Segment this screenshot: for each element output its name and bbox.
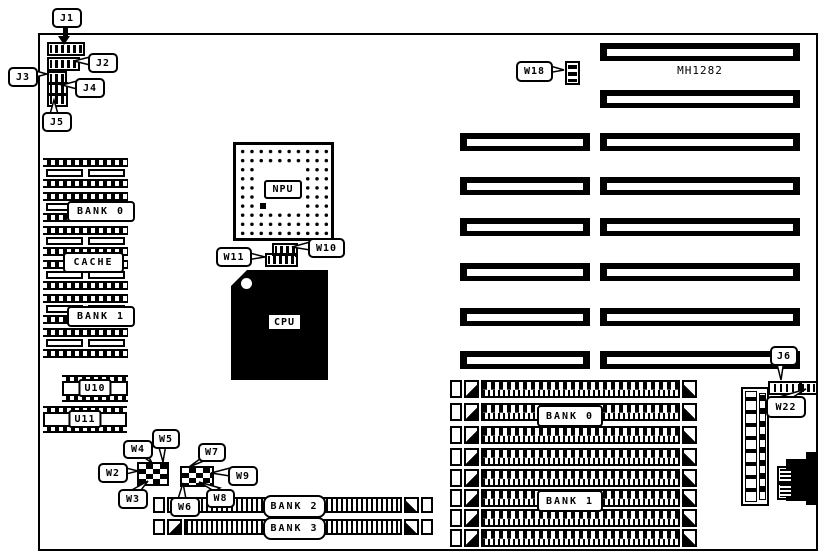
bank0-simm-label: BANK 0	[537, 405, 603, 427]
j2-callout: J2	[88, 53, 118, 73]
j6-callout: J6	[770, 346, 798, 366]
j5-header	[47, 93, 68, 107]
bank3-simm-label: BANK 3	[263, 517, 326, 540]
j5-callout: J5	[42, 112, 72, 132]
power-connector	[741, 387, 769, 506]
bank1-dip-label: BANK 1	[67, 306, 135, 327]
w10-callout: W10	[308, 238, 345, 258]
u10-chip: U10	[62, 375, 128, 402]
w7-callout: W7	[198, 443, 226, 462]
cpu-pin1-dot	[241, 278, 252, 289]
isa-slot-ext	[460, 351, 590, 369]
w6-w9-jumper-block	[180, 466, 214, 487]
w3-callout: W3	[118, 489, 148, 509]
simm-socket	[450, 448, 697, 466]
isa-slot	[600, 133, 800, 151]
isa-slot-ext	[460, 218, 590, 236]
j1-header	[47, 42, 85, 56]
isa-slot-ext	[460, 133, 590, 151]
w4-callout: W4	[123, 440, 153, 459]
w6-callout: W6	[170, 497, 200, 517]
isa-slot-ext	[460, 308, 590, 326]
isa-slot	[600, 218, 800, 236]
w22-callout: W22	[766, 396, 806, 418]
isa-slot	[600, 263, 800, 281]
isa-slot	[600, 43, 800, 61]
bank0-dip-label: BANK 0	[67, 201, 135, 222]
w11-callout: W11	[216, 247, 252, 267]
j2-header	[47, 57, 80, 71]
npu-socket-center: NPU	[257, 165, 305, 212]
isa-slot-ext	[460, 177, 590, 195]
w11-jumper	[265, 253, 298, 267]
keyboard-connector-pin	[777, 481, 794, 500]
cpu-chip: CPU	[231, 270, 328, 380]
motherboard-diagram: BANK 0 CACHE BANK 1 U10 U11 NPU CPU MH12…	[0, 0, 822, 556]
w18-jumper	[565, 61, 580, 85]
simm-socket	[450, 426, 697, 444]
keyboard-connector-shell	[806, 452, 816, 505]
j3-callout: J3	[8, 67, 38, 87]
simm-socket	[450, 380, 697, 398]
j6-header	[768, 381, 802, 395]
j1-callout: J1	[52, 8, 82, 28]
isa-slot	[600, 90, 800, 108]
w9-callout: W9	[228, 466, 258, 486]
w2-w5-jumper-block	[137, 462, 169, 486]
npu-label: NPU	[264, 180, 302, 199]
isa-slot-ext	[460, 263, 590, 281]
isa-slot	[600, 308, 800, 326]
bank1-simm-label: BANK 1	[537, 490, 603, 512]
bank2-simm-label: BANK 2	[263, 495, 326, 518]
w5-callout: W5	[152, 429, 180, 449]
npu-pin1-dot	[260, 203, 266, 209]
cache-label: CACHE	[63, 252, 124, 273]
u11-chip: U11	[43, 406, 127, 433]
dip-row	[43, 328, 128, 358]
u10-label: U10	[78, 379, 111, 397]
simm-socket	[450, 469, 697, 487]
simm-socket	[450, 529, 697, 547]
dip-row	[43, 158, 128, 188]
npu-socket: NPU	[233, 142, 334, 241]
u11-label: U11	[68, 410, 101, 428]
board-model-text: MH1282	[650, 64, 750, 77]
cpu-label: CPU	[269, 315, 300, 329]
j4-callout: J4	[75, 78, 105, 98]
w8-callout: W8	[206, 489, 235, 508]
w18-callout: W18	[516, 61, 553, 82]
isa-slot	[600, 177, 800, 195]
w2-callout: W2	[98, 463, 128, 483]
w22-jumper	[799, 381, 818, 395]
